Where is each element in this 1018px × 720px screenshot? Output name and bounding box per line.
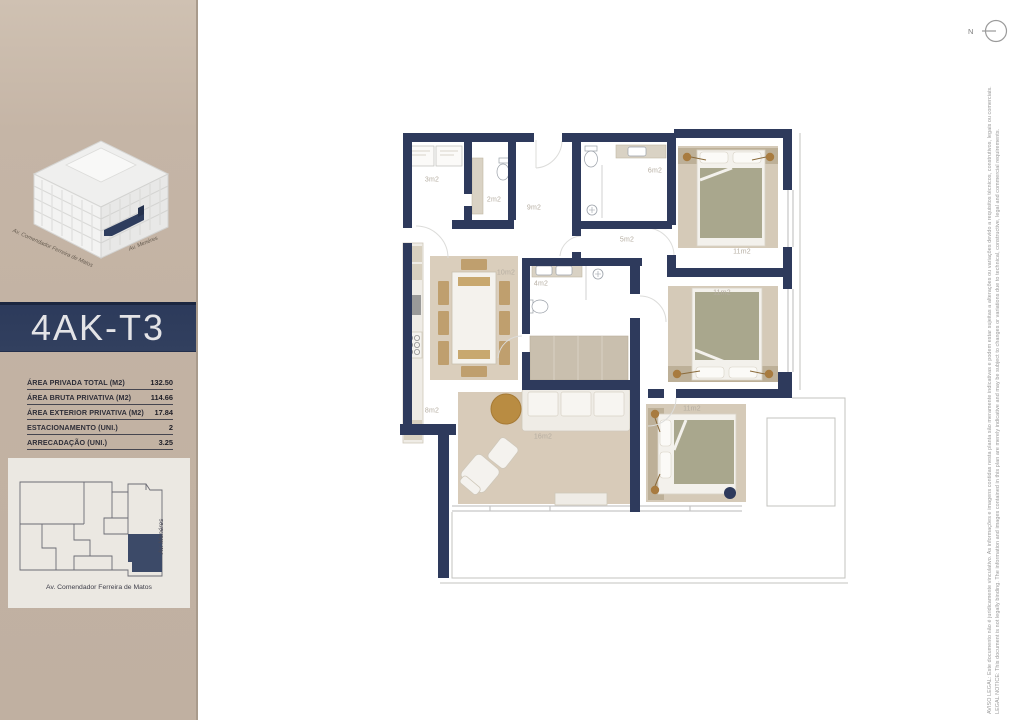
room-label-living: 16m2 xyxy=(534,434,552,441)
unit-title-band: 4AK-T3 xyxy=(0,302,196,352)
floor-plan-drawing xyxy=(390,110,860,600)
spec-label: ESTACIONAMENTO (UNI.) xyxy=(27,423,118,432)
column-dot xyxy=(724,487,736,499)
lamp-icon xyxy=(765,370,773,378)
room-label-hall: 9m2 xyxy=(527,205,541,212)
legal-text-en: LEGAL NOTICE: This document is not legal… xyxy=(994,86,1002,714)
toilet-icon xyxy=(585,146,598,167)
spec-row: ÁREA PRIVADA TOTAL (M2) 132.50 xyxy=(27,375,173,390)
spec-label: ÁREA PRIVADA TOTAL (M2) xyxy=(27,378,125,387)
toilet-icon xyxy=(497,158,509,180)
north-indicator: N xyxy=(968,18,1014,48)
keyplan-street-right: Av. Menéres xyxy=(158,519,165,554)
spec-row: ESTACIONAMENTO (UNI.) 2 xyxy=(27,420,173,435)
room-label-corridor: 5m2 xyxy=(620,237,634,244)
sink-icon xyxy=(556,266,572,275)
spec-value: 132.50 xyxy=(150,378,173,387)
room-label-kitchen: 8m2 xyxy=(425,408,439,415)
sink-icon xyxy=(628,147,646,156)
spec-value: 3.25 xyxy=(159,438,173,447)
room-label-bath-main: 4m2 xyxy=(534,281,548,288)
room-label-bath-top: 6m2 xyxy=(648,168,662,175)
room-label-wc: 2m2 xyxy=(487,197,501,204)
lamp-icon xyxy=(683,153,691,161)
keyplan-unit-highlight xyxy=(128,534,162,572)
spec-label: ÁREA EXTERIOR PRIVATIVA (M2) xyxy=(27,408,144,417)
keyplan-map xyxy=(16,478,166,582)
room-label-bedroom-2: 11m2 xyxy=(713,290,731,297)
compass-icon xyxy=(968,18,1014,48)
north-label: N xyxy=(968,27,973,36)
building-3d-icon xyxy=(4,110,192,270)
floorplan-page: Av. Comendador Ferreira de Matos Av. Men… xyxy=(0,0,1018,720)
spec-table: ÁREA PRIVADA TOTAL (M2) 132.50 ÁREA BRUT… xyxy=(27,375,173,450)
room-label-bedroom-3: 11m2 xyxy=(683,406,701,413)
room-label-bedroom-1: 11m2 xyxy=(733,249,751,256)
legal-disclaimer: AVISO LEGAL: Este documento não é juridi… xyxy=(986,86,1002,714)
building-illustration xyxy=(4,110,192,270)
spec-row: ÁREA EXTERIOR PRIVATIVA (M2) 17.84 xyxy=(27,405,173,420)
room-label-dining: 10m2 xyxy=(497,270,515,277)
spec-row: ÁREA BRUTA PRIVATIVA (M2) 114.66 xyxy=(27,390,173,405)
lamp-icon xyxy=(673,370,681,378)
lamp-icon xyxy=(651,410,659,418)
spec-value: 114.66 xyxy=(151,393,173,402)
room-label-laundry: 3m2 xyxy=(425,177,439,184)
sofa-icon xyxy=(522,389,630,431)
dryer-icon xyxy=(436,146,462,166)
sidebar: Av. Comendador Ferreira de Matos Av. Men… xyxy=(0,0,198,720)
spec-value: 2 xyxy=(169,423,173,432)
toilet-icon xyxy=(527,300,548,313)
tv-console-icon xyxy=(555,493,607,505)
unit-title: 4AK-T3 xyxy=(31,307,165,349)
keyplan-panel: Av. Menéres Av. Comendador Ferreira de M… xyxy=(8,458,190,608)
keyplan-street-bottom: Av. Comendador Ferreira de Matos xyxy=(8,584,190,591)
spec-row: ARRECADAÇÃO (UNI.) 3.25 xyxy=(27,435,173,450)
bedroom-3-furniture xyxy=(648,408,736,500)
spec-value: 17.84 xyxy=(155,408,174,417)
sink-icon xyxy=(536,266,552,275)
lamp-icon xyxy=(766,153,774,161)
spec-label: ARRECADAÇÃO (UNI.) xyxy=(27,438,107,447)
wardrobe xyxy=(530,336,628,380)
spec-label: ÁREA BRUTA PRIVATIVA (M2) xyxy=(27,393,131,402)
legal-text-pt: AVISO LEGAL: Este documento não é juridi… xyxy=(986,86,994,714)
lamp-icon xyxy=(651,486,659,494)
